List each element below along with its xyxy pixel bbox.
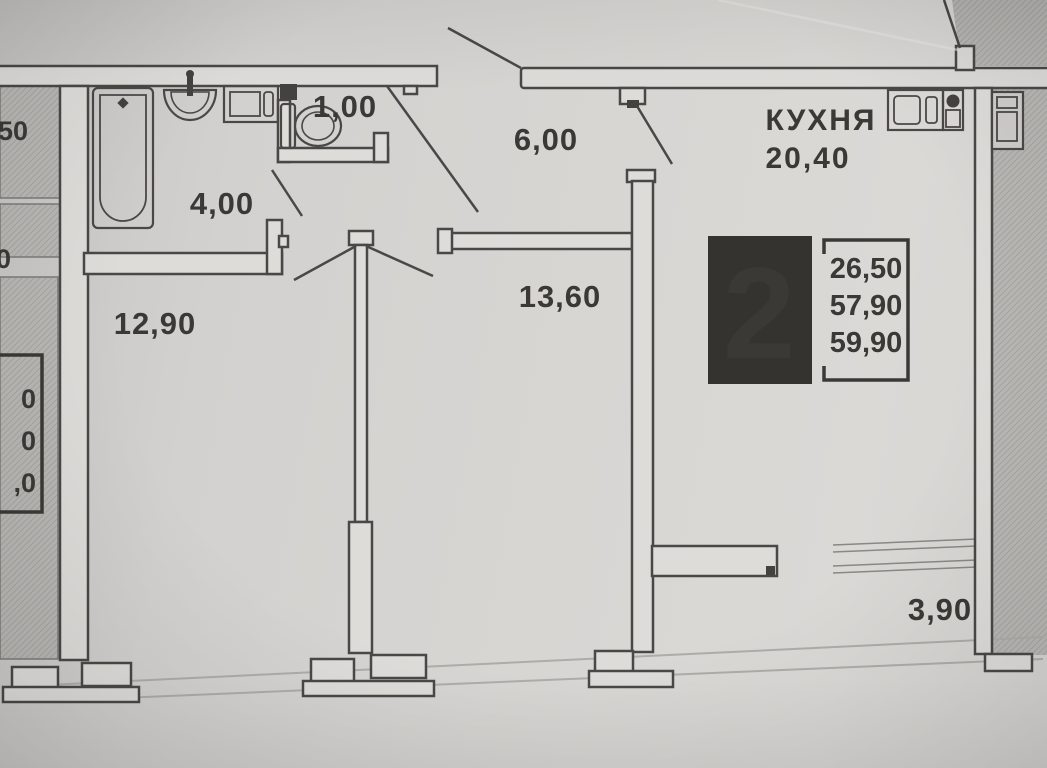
balcony-wall-nub xyxy=(766,566,775,575)
adjacent-badge-line2: 0 xyxy=(21,426,36,456)
label-room-mid-area: 13,60 xyxy=(519,279,602,314)
wall-kitchen-balcony xyxy=(652,546,777,576)
label-balcony-area: 3,90 xyxy=(908,592,972,627)
label-bath-area: 4,00 xyxy=(190,186,254,221)
paper-crease xyxy=(718,0,958,50)
footing xyxy=(985,654,1032,671)
wall-bathroom-bottom xyxy=(84,253,282,274)
floor-plan-photo: 1,00 6,00 4,00 12,90 13,60 КУХНЯ 20,40 3… xyxy=(0,0,1047,768)
adjacent-label-top: 50 xyxy=(0,116,28,146)
wc-door-leaf xyxy=(387,86,478,212)
balcony-glazing-lines xyxy=(6,637,1043,701)
badge-total-area: 59,90 xyxy=(830,327,903,359)
wall-left xyxy=(60,86,88,660)
label-hall-area: 6,00 xyxy=(514,122,578,157)
wall-wc-right-cap xyxy=(374,133,388,162)
footing xyxy=(595,651,633,672)
partition-top-cap xyxy=(349,231,373,245)
partition-lower xyxy=(349,522,372,653)
label-kitchen-name: КУХНЯ xyxy=(766,104,877,137)
label-room-left-area: 12,90 xyxy=(114,306,197,341)
wall-right xyxy=(975,88,992,654)
partition-thin xyxy=(355,245,367,522)
entry-door-leaf xyxy=(448,28,521,68)
bathtub-icon xyxy=(93,88,153,228)
door-frame-nub xyxy=(404,86,417,94)
vent-shaft-icon xyxy=(992,92,1023,149)
exterior-zone-right xyxy=(992,88,1047,655)
footing xyxy=(371,655,426,678)
wall-divider xyxy=(632,181,653,652)
room-left-door-leaf xyxy=(294,246,356,280)
footing-base xyxy=(303,681,434,696)
floor-plan-drawing: 1,00 6,00 4,00 12,90 13,60 КУХНЯ 20,40 3… xyxy=(0,0,1047,768)
adjacent-badge-line3: ,0 xyxy=(13,468,36,498)
label-kitchen-area: 20,40 xyxy=(765,142,850,175)
footing-base xyxy=(589,671,673,687)
badge-rooms-count: 2 xyxy=(723,240,795,386)
apartment-badge: 2 26,50 57,90 59,90 xyxy=(708,236,908,386)
adjacent-label-mid: 0 xyxy=(0,244,11,274)
wc-corner-dot xyxy=(280,84,297,100)
kitchen-sink-icon xyxy=(888,90,943,130)
badge-living-area: 26,50 xyxy=(830,253,903,285)
badge-apartment-area: 57,90 xyxy=(830,290,903,322)
door-hinge-nub-bathroom xyxy=(279,236,288,247)
wall-stub-top-right xyxy=(956,46,974,70)
wall-wc-bottom xyxy=(278,148,388,162)
wall-top-left xyxy=(0,66,437,86)
label-wc-area: 1,00 xyxy=(313,89,377,124)
bathroom-door-leaf xyxy=(272,170,302,216)
kitchen-door-leaf xyxy=(637,106,672,164)
adjacent-badge-line1: 0 xyxy=(21,384,36,414)
room-mid-door-leaf xyxy=(366,246,433,276)
footing xyxy=(311,659,354,682)
washing-machine-icon xyxy=(224,86,278,122)
footing xyxy=(82,663,131,686)
stove-icon xyxy=(943,90,963,130)
wall-hall-bottom xyxy=(442,233,632,249)
footing-base xyxy=(3,687,139,702)
balcony-window-lines xyxy=(833,539,977,573)
wall-hall-bottom-cap xyxy=(438,229,452,253)
